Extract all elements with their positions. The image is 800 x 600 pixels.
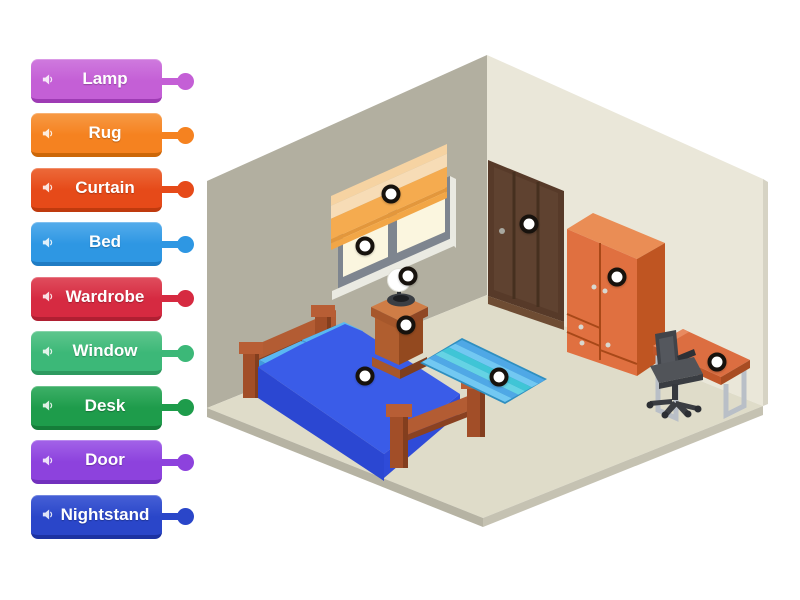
label-row-curtain: Curtain	[31, 168, 194, 212]
speaker-icon[interactable]	[41, 344, 56, 359]
label-connector-dot[interactable]	[177, 345, 194, 362]
wardrobe-graphic	[567, 213, 665, 376]
target-pin-wardrobe[interactable]	[608, 268, 627, 287]
connector-stem	[162, 295, 178, 302]
label-connector-dot[interactable]	[177, 290, 194, 307]
room-shell	[207, 55, 768, 527]
label-row-desk: Desk	[31, 386, 194, 430]
target-pin-rug[interactable]	[490, 368, 509, 387]
speaker-icon[interactable]	[41, 235, 56, 250]
label-pill-bed[interactable]: Bed	[31, 222, 162, 266]
label-pill-rug[interactable]: Rug	[31, 113, 162, 157]
label-connector-dot[interactable]	[177, 508, 194, 525]
label-text: Rug	[56, 123, 154, 143]
target-pin-bed[interactable]	[356, 367, 375, 386]
label-pill-window[interactable]: Window	[31, 331, 162, 375]
connector-stem	[162, 513, 178, 520]
connector-stem	[162, 132, 178, 139]
connector-stem	[162, 78, 178, 85]
label-row-door: Door	[31, 440, 194, 484]
speaker-icon[interactable]	[41, 126, 56, 141]
target-pin-window[interactable]	[356, 237, 375, 256]
target-pin-lamp[interactable]	[399, 267, 418, 286]
label-text: Desk	[56, 396, 154, 416]
speaker-icon[interactable]	[41, 453, 56, 468]
label-text: Wardrobe	[56, 287, 154, 307]
speaker-icon[interactable]	[41, 398, 56, 413]
label-text: Bed	[56, 232, 154, 252]
right-wall-edge	[763, 179, 768, 406]
label-text: Lamp	[56, 69, 154, 89]
target-pin-curtain[interactable]	[382, 185, 401, 204]
label-text: Curtain	[56, 178, 154, 198]
connector-stem	[162, 404, 178, 411]
label-row-lamp: Lamp	[31, 59, 194, 103]
label-connector-dot[interactable]	[177, 236, 194, 253]
speaker-icon[interactable]	[41, 180, 56, 195]
label-pill-desk[interactable]: Desk	[31, 386, 162, 430]
label-pill-curtain[interactable]: Curtain	[31, 168, 162, 212]
label-row-wardrobe: Wardrobe	[31, 277, 194, 321]
label-text: Door	[56, 450, 154, 470]
label-connector-dot[interactable]	[177, 181, 194, 198]
connector-stem	[162, 350, 178, 357]
target-pin-desk[interactable]	[708, 353, 727, 372]
label-connector-dot[interactable]	[177, 127, 194, 144]
connector-stem	[162, 459, 178, 466]
label-row-rug: Rug	[31, 113, 194, 157]
label-pill-door[interactable]: Door	[31, 440, 162, 484]
speaker-icon[interactable]	[41, 507, 56, 522]
label-pill-lamp[interactable]: Lamp	[31, 59, 162, 103]
labelled-diagram-activity: LampRugCurtainBedWardrobeWindowDeskDoorN…	[0, 0, 800, 600]
label-connector-dot[interactable]	[177, 454, 194, 471]
target-pin-door[interactable]	[520, 215, 539, 234]
label-text: Nightstand	[56, 505, 154, 525]
label-row-bed: Bed	[31, 222, 194, 266]
label-pill-nightstand[interactable]: Nightstand	[31, 495, 162, 539]
target-pin-nightstand[interactable]	[397, 316, 416, 335]
connector-stem	[162, 186, 178, 193]
label-pill-wardrobe[interactable]: Wardrobe	[31, 277, 162, 321]
label-text: Window	[56, 341, 154, 361]
connector-stem	[162, 241, 178, 248]
label-row-nightstand: Nightstand	[31, 495, 194, 539]
label-connector-dot[interactable]	[177, 73, 194, 90]
speaker-icon[interactable]	[41, 72, 56, 87]
speaker-icon[interactable]	[41, 289, 56, 304]
label-row-window: Window	[31, 331, 194, 375]
label-connector-dot[interactable]	[177, 399, 194, 416]
